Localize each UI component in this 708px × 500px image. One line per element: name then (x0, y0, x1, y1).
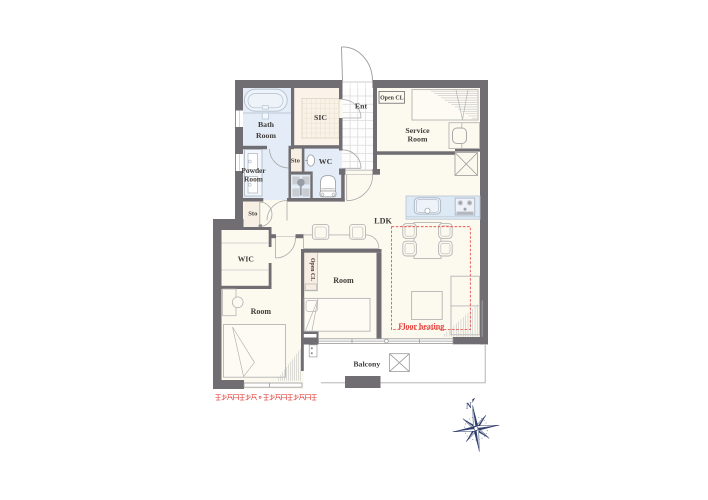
svg-text:WC: WC (319, 157, 333, 166)
svg-text:LDK: LDK (374, 217, 392, 226)
svg-text:Room: Room (408, 134, 428, 143)
svg-text:Balcony: Balcony (353, 359, 380, 368)
svg-text:Bath: Bath (258, 120, 275, 129)
svg-text:Room: Room (333, 276, 354, 285)
svg-text:SIC: SIC (314, 113, 327, 122)
svg-text:Sto: Sto (248, 211, 258, 218)
svg-text:Room: Room (244, 175, 264, 184)
svg-text:Open CL: Open CL (380, 96, 403, 102)
svg-text:Floor heating: Floor heating (398, 322, 444, 331)
svg-text:WIC: WIC (238, 254, 254, 263)
svg-text:Open CL: Open CL (309, 258, 315, 281)
svg-text:Powder: Powder (241, 166, 266, 175)
svg-text:Ent: Ent (355, 102, 368, 111)
svg-text:Room: Room (251, 307, 272, 316)
svg-text:Sto: Sto (291, 158, 301, 165)
svg-text:Room: Room (256, 131, 276, 140)
